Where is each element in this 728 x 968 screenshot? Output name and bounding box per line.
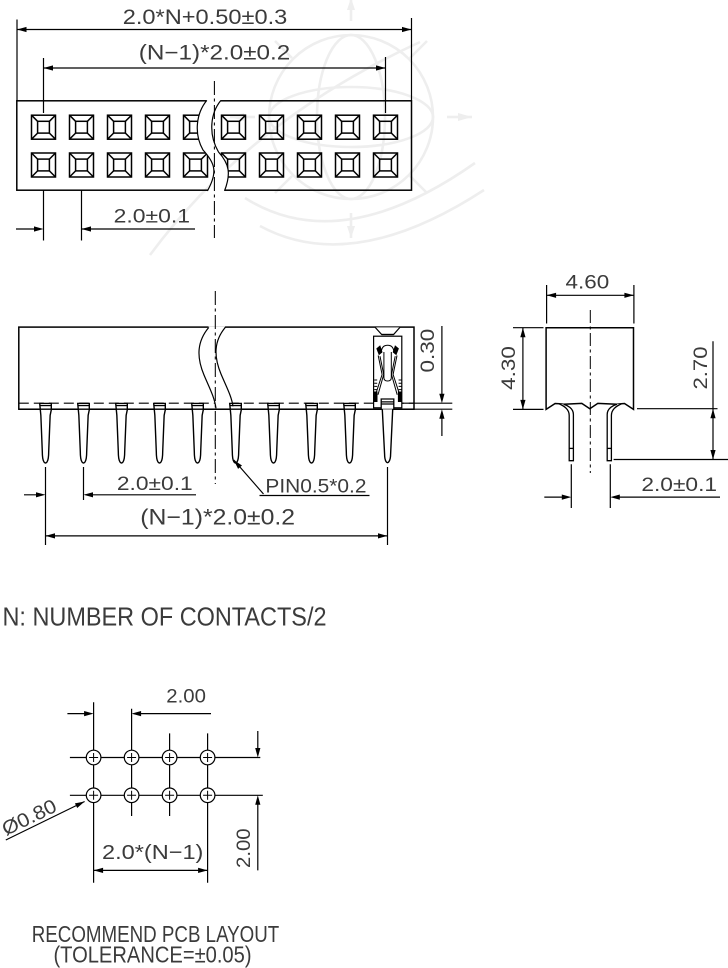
svg-text:2.00: 2.00 <box>166 685 206 707</box>
svg-text:N: NUMBER OF CONTACTS/2: N: NUMBER OF CONTACTS/2 <box>3 604 327 632</box>
svg-text:PIN0.5*0.2: PIN0.5*0.2 <box>265 476 366 498</box>
svg-text:2.0±0.1: 2.0±0.1 <box>114 206 190 228</box>
svg-text:2.0±0.1: 2.0±0.1 <box>117 473 193 495</box>
svg-text:(TOLERANCE=±0.05): (TOLERANCE=±0.05) <box>53 942 251 968</box>
svg-text:2.00: 2.00 <box>233 828 255 868</box>
svg-text:4.60: 4.60 <box>566 271 610 293</box>
svg-text:4.30: 4.30 <box>498 346 520 390</box>
svg-text:2.0±0.1: 2.0±0.1 <box>641 474 717 496</box>
svg-text:2.0*(N−1): 2.0*(N−1) <box>102 841 203 864</box>
svg-text:0.30: 0.30 <box>417 329 439 373</box>
svg-text:2.0*N+0.50±0.3: 2.0*N+0.50±0.3 <box>123 6 288 29</box>
svg-text:(N−1)*2.0±0.2: (N−1)*2.0±0.2 <box>139 42 291 65</box>
svg-text:(N−1)*2.0±0.2: (N−1)*2.0±0.2 <box>140 505 295 530</box>
svg-text:2.70: 2.70 <box>690 346 712 389</box>
